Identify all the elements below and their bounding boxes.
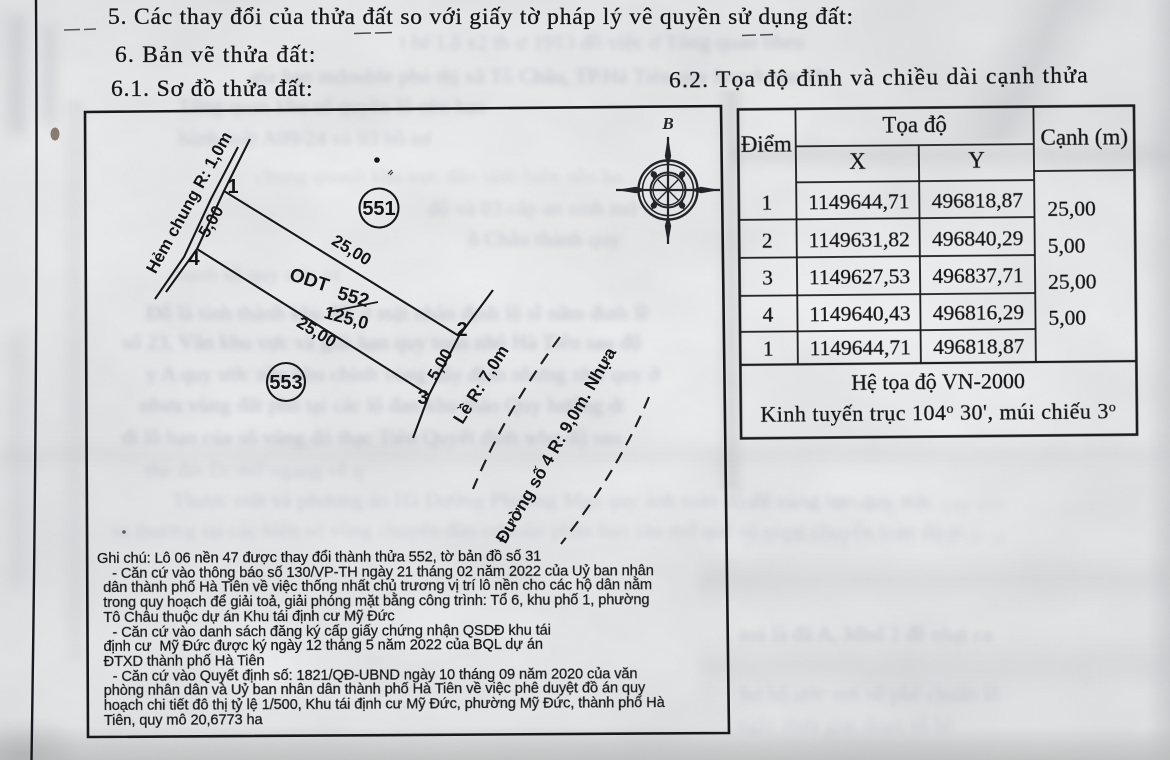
svg-text:4: 4	[188, 248, 200, 270]
svg-text:B: B	[661, 114, 673, 133]
svg-text:ODT: ODT	[287, 264, 332, 296]
svg-text:2: 2	[456, 319, 467, 341]
svg-text:1: 1	[227, 176, 238, 198]
svg-text:551: 551	[362, 198, 395, 220]
svg-text:Lề R: 7,0m: Lề R: 7,0m	[449, 341, 513, 427]
svg-text:25,00: 25,00	[328, 231, 374, 269]
svg-text:5,00: 5,00	[195, 202, 228, 240]
svg-text:Đường số 4 R: 9,0m. Nhựa: Đường số 4 R: 9,0m. Nhựa	[492, 344, 621, 547]
svg-text:3: 3	[417, 387, 428, 409]
svg-text:553: 553	[269, 372, 302, 394]
